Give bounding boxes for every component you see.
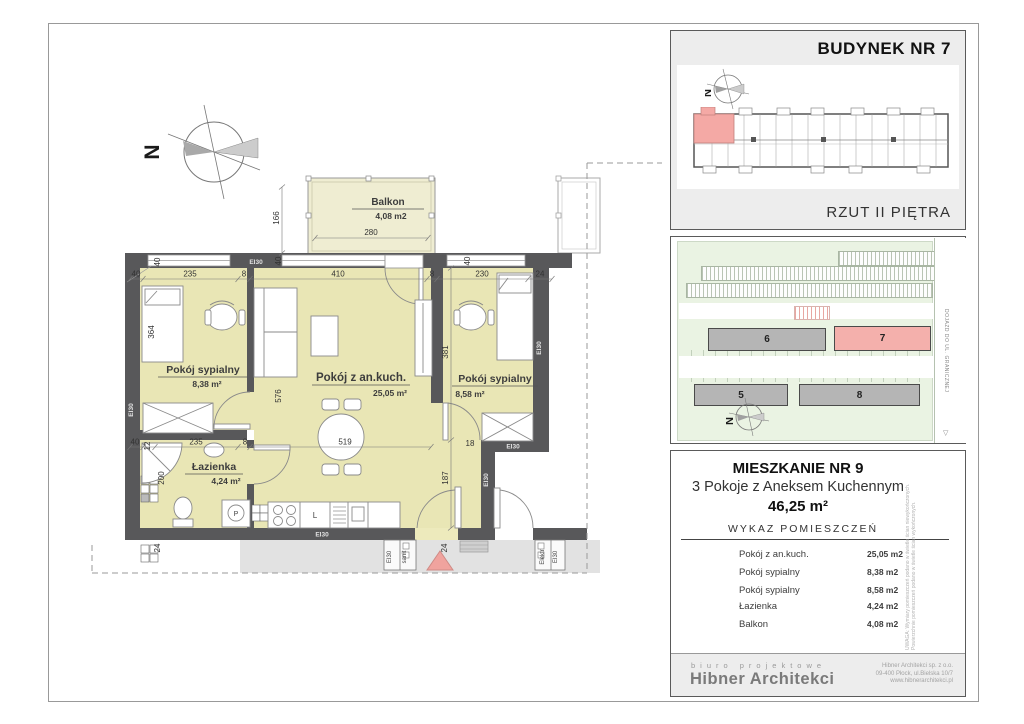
room-area: 8,38 m2 [867, 567, 898, 577]
parking-strip [701, 266, 940, 281]
room-area: 4,08 m2 [375, 211, 406, 221]
road-label: DOJAZD DO UL. GRANICZNEJ [943, 309, 949, 429]
dim-label: 18 [466, 439, 475, 448]
dim-label: 40 [153, 257, 162, 266]
road [679, 356, 934, 378]
floor-caption: RZUT II PIĘTRA [826, 204, 951, 221]
studio-type: biuro projektowe [691, 661, 826, 670]
ei30-label: EI30 [483, 473, 490, 487]
dim-label: 8 [430, 270, 435, 279]
dim-label: 381 [441, 345, 450, 359]
apartment-total-area: 46,25 m² [671, 498, 925, 515]
dim-label: 235 [189, 438, 203, 447]
building-8: 8 [799, 384, 920, 406]
address-line: www.hibnerarchitekci.pl [876, 678, 953, 686]
dim-label: 187 [441, 471, 450, 485]
building-panel: BUDYNEK NR 7 N [670, 30, 966, 230]
ei30-label: EI30 [536, 341, 543, 355]
washer-label: P [234, 511, 239, 518]
room-list-row: Pokój sypialny 8,58 m2 [671, 585, 965, 601]
room-area: 4,24 m2 [867, 601, 898, 611]
drawing-sheet: 40 235 8 410 8 230 24 280 166 40 40 40 4… [0, 0, 1024, 724]
road-arrow-icon: ▽ [943, 429, 948, 437]
kitchen-counter [268, 502, 400, 528]
wardrobe-left [143, 403, 213, 433]
cabinet [415, 300, 432, 376]
dim-label: 8 [242, 270, 247, 279]
dim-label: 410 [331, 270, 345, 279]
entry-mat [460, 541, 488, 552]
dim-label: 12 [143, 441, 152, 450]
parking-strip [838, 251, 946, 266]
north-letter: N [141, 144, 164, 159]
room-list-row: Pokój z an.kuch. 25,05 m2 [671, 549, 965, 565]
dim-label: 280 [364, 228, 378, 237]
toilet [173, 497, 193, 527]
room-area: 25,05 m2 [867, 549, 903, 559]
bed-right [497, 273, 533, 360]
ei30-label: EI30 [553, 550, 559, 563]
building-number: 8 [857, 390, 863, 401]
stove-burner [274, 517, 283, 526]
studio-name: Hibner Architekci [690, 670, 835, 689]
parking-strip [686, 283, 933, 298]
balcony [306, 176, 435, 255]
building-7-highlighted: 7 [834, 326, 931, 351]
studio-address: Hibner Architekci sp. z o.o. 09-400 Płoc… [876, 663, 953, 686]
dim-label: 40 [132, 270, 141, 279]
bed-left [142, 286, 183, 362]
dim-label: 24 [440, 543, 449, 552]
dim-label: 576 [274, 389, 283, 403]
shaft-label: Elektr [540, 549, 546, 564]
room-list-row: Balkon 4,08 m2 [671, 619, 965, 635]
coffee-table [311, 316, 338, 356]
stove-burner [274, 506, 283, 515]
room-name: Balkon [739, 619, 768, 630]
ei30-label: EI30 [387, 550, 393, 563]
dim-label: 519 [338, 438, 352, 447]
floor-overview [691, 107, 953, 181]
apartment-title: MIESZKANIE NR 9 [671, 460, 925, 477]
highlighted-apartment [694, 114, 734, 143]
north-letter: N [726, 417, 736, 425]
room-area: 8,58 m2 [867, 585, 898, 595]
kitchen-sink [352, 507, 364, 521]
access-road [934, 238, 966, 443]
room-area: 25,05 m² [373, 388, 407, 398]
disclaimer-text: UWAGA: Wymiary pomieszczeń podano w świe… [905, 465, 917, 650]
dim-label: 40 [131, 438, 140, 447]
dim-label: 40 [463, 256, 472, 265]
dim-label: 24 [153, 543, 162, 552]
north-compass: N [141, 105, 260, 199]
building-6: 6 [708, 328, 826, 351]
stove-burner [287, 506, 296, 515]
dim-label: 24 [536, 270, 545, 279]
room-label: Balkon [371, 197, 404, 208]
building-title: BUDYNEK NR 7 [817, 39, 951, 59]
room-label: Pokój sypialny [166, 364, 240, 376]
room-label: Łazienka [192, 461, 237, 473]
room-list-row: Pokój sypialny 8,38 m2 [671, 567, 965, 583]
address-line: 09-400 Płock, ul.Bielska 10/7 [876, 671, 953, 679]
room-area: 8,58 m² [455, 389, 484, 399]
site-plan-panel: 6 7 5 8 DOJAZD DO UL. GRANICZNEJ ▽ N [670, 236, 966, 444]
stove-burner [287, 517, 296, 526]
title-block: biuro projektowe Hibner Architekci Hibne… [671, 653, 965, 696]
room-list-row: Łazienka 4,24 m2 [671, 601, 965, 617]
room-name: Łazienka [739, 601, 777, 612]
apartment-subtitle: 3 Pokoje z Aneksem Kuchennym [671, 479, 925, 495]
sofa [254, 288, 297, 377]
building-number: 7 [880, 333, 886, 344]
room-list-title: WYKAZ POMIESZCZEŃ [671, 523, 935, 535]
north-compass: N [726, 395, 772, 441]
shaft-label: sanit [402, 550, 408, 563]
wardrobe-right [482, 413, 533, 441]
dim-label: 200 [157, 471, 166, 485]
dim-label: 235 [183, 270, 197, 279]
highlight-strip [794, 306, 830, 320]
ei30-label: EI30 [128, 403, 135, 417]
ei30-label: EI30 [315, 532, 329, 539]
dim-label: 8 [243, 438, 248, 447]
room-name: Pokój z an.kuch. [739, 549, 809, 560]
room-area: 4,24 m² [211, 476, 240, 486]
neighbour-balcony [556, 176, 600, 253]
sink-unit-label: L [313, 511, 318, 520]
room-name: Pokój sypialny [739, 567, 800, 578]
room-label: Pokój sypialny [458, 373, 532, 385]
address-line: Hibner Architekci sp. z o.o. [876, 663, 953, 671]
ei30-label: EI30 [249, 259, 263, 266]
room-label: Pokój z an.kuch. [316, 372, 406, 384]
dim-label: 364 [147, 325, 156, 339]
dim-label: 40 [274, 256, 283, 265]
room-area: 8,38 m² [192, 379, 221, 389]
washbasin [204, 443, 224, 457]
building-number: 6 [764, 334, 770, 345]
north-letter: N [705, 89, 714, 97]
room-name: Pokój sypialny [739, 585, 800, 596]
dim-label: 166 [272, 211, 281, 225]
dim-label: 230 [475, 270, 489, 279]
room-area: 4,08 m2 [867, 619, 898, 629]
ei30-label: EI30 [506, 444, 520, 451]
apartment-info-panel: MIESZKANIE NR 9 3 Pokoje z Aneksem Kuche… [670, 450, 966, 697]
